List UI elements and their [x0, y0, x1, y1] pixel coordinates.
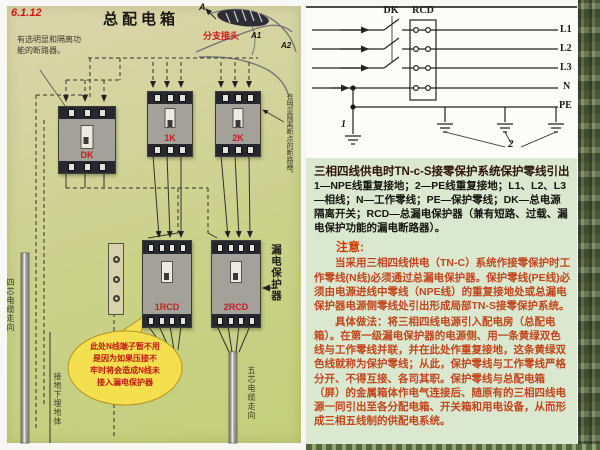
note-paragraph-2: 具体做法：将三相四线电源引入配电房（总配电箱）。在第一级漏电保护器的电源侧、用一… — [314, 315, 571, 429]
terminal — [222, 94, 229, 102]
line-label-pe: PE — [559, 100, 572, 111]
branch-breaker-2k: 2K — [215, 91, 261, 157]
rcd-bottom-terminals — [143, 314, 191, 327]
terminal-hole — [113, 256, 120, 263]
rcd-label: 2RCD — [212, 302, 260, 312]
schematic-panel — [306, 6, 577, 160]
terminal — [159, 244, 165, 252]
breaker-top-terminals — [148, 92, 192, 104]
ground-2-label: 2 — [508, 138, 514, 150]
terminal — [180, 244, 186, 252]
rcd-label: RCD — [407, 5, 439, 16]
terminal — [249, 244, 255, 252]
terminal — [169, 244, 175, 252]
terminal — [154, 94, 161, 102]
breaker-label: 1K — [148, 133, 192, 143]
terminal — [99, 109, 106, 117]
terminal — [68, 109, 75, 117]
pe-terminal-bar — [108, 243, 124, 315]
figure-number: 6.1.12 — [11, 7, 42, 19]
terminal — [228, 317, 234, 325]
breaker-top-terminals — [216, 92, 260, 104]
point-a2-label: A2 — [281, 41, 291, 50]
four-core-cable-label: 四芯电缆走向 — [5, 278, 16, 332]
terminal — [159, 317, 165, 325]
rcd-1: 1RCD — [142, 240, 192, 328]
terminal — [99, 163, 106, 171]
terminal — [180, 317, 186, 325]
line-label-l1: L1 — [560, 24, 572, 35]
rcd-top-terminals — [143, 241, 191, 254]
terminal — [217, 317, 223, 325]
terminal — [228, 244, 234, 252]
terminal — [179, 94, 186, 102]
slide-background-pattern-bottom — [306, 444, 600, 450]
breaker-label: 2K — [216, 133, 260, 143]
terminal — [222, 146, 229, 154]
callout-text: 此处N线端子暂不用 是因为如果压接不 牢时将会造成N线未 接入漏电保护器 — [70, 341, 180, 389]
line-label-n: N — [563, 81, 570, 92]
breaker-bottom-terminals — [216, 144, 260, 156]
breaker-toggle — [165, 108, 176, 128]
branch-breaker-1k: 1K — [147, 91, 193, 157]
terminal — [154, 146, 161, 154]
caption-legend: 1—NPE线重复接地；2—PE线重复接地；L1、L2、L3—相线；N—工作零线；… — [314, 180, 571, 235]
terminal-hole — [113, 295, 120, 302]
terminal — [84, 109, 91, 117]
handwritten-note-right: 有明显隔离断点的断路器。 — [284, 93, 294, 177]
terminal — [167, 146, 174, 154]
terminal — [179, 146, 186, 154]
terminal — [169, 317, 175, 325]
ground-1-label: 1 — [341, 119, 346, 130]
terminal — [249, 317, 255, 325]
terminal — [84, 163, 91, 171]
line-label-l2: L2 — [560, 43, 572, 54]
branch-joint-label: 分支接头 — [203, 29, 239, 42]
breaker-bottom-terminals — [148, 144, 192, 156]
terminal — [148, 244, 154, 252]
rcd-2: 2RCD — [211, 240, 261, 328]
rcd-toggle — [161, 261, 173, 283]
terminal — [247, 146, 254, 154]
left-panel-title: 总配电箱 — [103, 8, 179, 29]
terminal — [238, 317, 244, 325]
breaker-top-terminals — [59, 107, 115, 119]
terminal — [247, 94, 254, 102]
line-label-l3: L3 — [560, 62, 572, 73]
caption-title: 三相四线供电时TN-c-S接零保护系统保护零线引出 — [314, 163, 571, 179]
breaker-toggle — [81, 125, 94, 149]
point-a-label: A — [199, 2, 206, 12]
terminal — [167, 94, 174, 102]
earth-electrode-label: 接地下埋地体 — [52, 372, 63, 426]
note-heading: 注意: — [336, 238, 577, 255]
handwritten-note-topleft: 有选明显和隔离功 能的断路器。 — [17, 34, 81, 56]
terminal-hole — [113, 276, 120, 283]
rcd-label: 1RCD — [143, 302, 191, 312]
rcd-top-terminals — [212, 241, 260, 254]
terminal — [68, 163, 75, 171]
rcd-toggle — [230, 261, 242, 283]
breaker-bottom-terminals — [59, 161, 115, 173]
main-isolator-breaker: DK — [58, 106, 116, 174]
terminal — [148, 317, 154, 325]
breaker-toggle — [233, 108, 244, 128]
terminal — [235, 94, 242, 102]
note-paragraph-1: 当采用三相四线供电（TN-C）系统作接零保护时工作零线(N线)必须通过总漏电保护… — [314, 256, 571, 313]
terminal — [217, 244, 223, 252]
point-a1-label: A1 — [251, 31, 261, 40]
breaker-label: DK — [59, 150, 115, 160]
slide-background-pattern-strip — [578, 0, 600, 450]
dk-label: DK — [378, 5, 404, 16]
rcd-bottom-terminals — [212, 314, 260, 327]
terminal — [235, 146, 242, 154]
five-core-cable-label: 五芯电缆走向 — [246, 366, 257, 420]
caption-text-panel: 三相四线供电时TN-c-S接零保护系统保护零线引出 1—NPE线重复接地；2—P… — [306, 158, 577, 444]
terminal — [238, 244, 244, 252]
rcd-side-label: 漏电保护器 — [269, 244, 284, 302]
